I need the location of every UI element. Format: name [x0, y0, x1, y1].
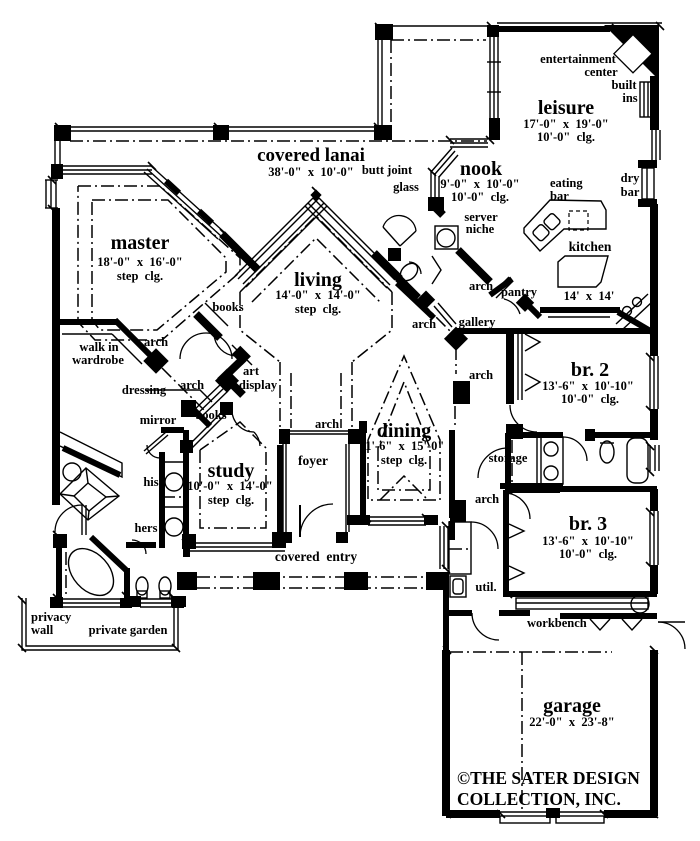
svg-text:private garden: private garden — [89, 623, 168, 637]
svg-text:arch: arch — [144, 335, 168, 349]
svg-text:workbench: workbench — [527, 616, 587, 630]
svg-text:ins: ins — [622, 91, 637, 105]
svg-text:util.: util. — [475, 580, 496, 594]
svg-text:books: books — [212, 300, 243, 314]
svg-text:covered lanai: covered lanai — [257, 145, 365, 166]
svg-text:14'-0" x 14'-0": 14'-0" x 14'-0" — [275, 288, 360, 302]
svg-text:11'-6" x 15'-0": 11'-6" x 15'-0" — [360, 439, 445, 453]
svg-text:kitchen: kitchen — [569, 239, 612, 254]
svg-text:bar: bar — [550, 189, 569, 203]
svg-text:master: master — [111, 232, 170, 254]
svg-text:17'-0" x 19'-0": 17'-0" x 19'-0" — [523, 117, 608, 131]
svg-text:gallery: gallery — [459, 315, 497, 329]
svg-text:10'-0" clg.: 10'-0" clg. — [537, 130, 595, 144]
svg-text:wardrobe: wardrobe — [72, 353, 124, 367]
svg-text:leisure: leisure — [538, 97, 594, 119]
svg-text:built: built — [611, 78, 637, 92]
svg-text:storage: storage — [489, 451, 528, 465]
svg-text:10'-0" clg.: 10'-0" clg. — [451, 190, 509, 204]
svg-text:butt joint: butt joint — [362, 163, 413, 177]
svg-text:step clg.: step clg. — [295, 302, 341, 316]
svg-text:10'-0" clg.: 10'-0" clg. — [559, 547, 617, 561]
svg-text:mirror: mirror — [140, 413, 177, 427]
svg-text:hers: hers — [135, 521, 158, 535]
svg-text:br. 3: br. 3 — [569, 513, 607, 535]
svg-text:13'-6" x 10'-10": 13'-6" x 10'-10" — [542, 534, 634, 548]
svg-text:garage: garage — [543, 695, 601, 717]
svg-text:entertainment: entertainment — [540, 52, 617, 66]
svg-text:arch: arch — [469, 279, 493, 293]
svg-text:foyer: foyer — [298, 453, 328, 468]
svg-text:eating: eating — [550, 176, 583, 190]
svg-text:18'-0" x 16'-0": 18'-0" x 16'-0" — [97, 255, 182, 269]
svg-text:bar: bar — [621, 185, 640, 199]
svg-text:covered entry: covered entry — [275, 549, 357, 564]
svg-text:center: center — [584, 65, 618, 79]
svg-text:10'-0" x 14'-0": 10'-0" x 14'-0" — [187, 479, 272, 493]
svg-text:step clg.: step clg. — [117, 269, 163, 283]
svg-text:wall: wall — [31, 623, 54, 637]
svg-text:14' x 14': 14' x 14' — [564, 289, 615, 303]
svg-text:walk in: walk in — [79, 340, 118, 354]
svg-text:glass: glass — [393, 180, 419, 194]
svg-text:br. 2: br. 2 — [571, 359, 609, 381]
svg-text:display: display — [239, 378, 278, 392]
svg-text:privacy: privacy — [31, 610, 72, 624]
svg-text:step clg.: step clg. — [208, 493, 254, 507]
svg-text:10'-0" clg.: 10'-0" clg. — [561, 392, 619, 406]
svg-text:arch: arch — [475, 492, 499, 506]
svg-text:9'-0" x 10'-0": 9'-0" x 10'-0" — [440, 177, 519, 191]
svg-text:arch: arch — [315, 417, 339, 431]
svg-text:dry: dry — [621, 171, 641, 185]
svg-text:niche: niche — [466, 222, 495, 236]
svg-text:arch: arch — [469, 368, 493, 382]
svg-text:13'-6" x 10'-10": 13'-6" x 10'-10" — [542, 379, 634, 393]
svg-text:arch: arch — [180, 378, 204, 392]
svg-text:COLLECTION, INC.: COLLECTION, INC. — [457, 789, 621, 809]
svg-text:art: art — [243, 364, 260, 378]
svg-text:his: his — [143, 475, 158, 489]
svg-text:step clg.: step clg. — [381, 453, 427, 467]
svg-text:©THE SATER DESIGN: ©THE SATER DESIGN — [457, 768, 640, 788]
svg-text:22'-0" x 23'-8": 22'-0" x 23'-8" — [529, 715, 614, 729]
svg-text:arch: arch — [412, 317, 436, 331]
svg-text:38'-0" x 10'-0": 38'-0" x 10'-0" — [268, 165, 353, 179]
